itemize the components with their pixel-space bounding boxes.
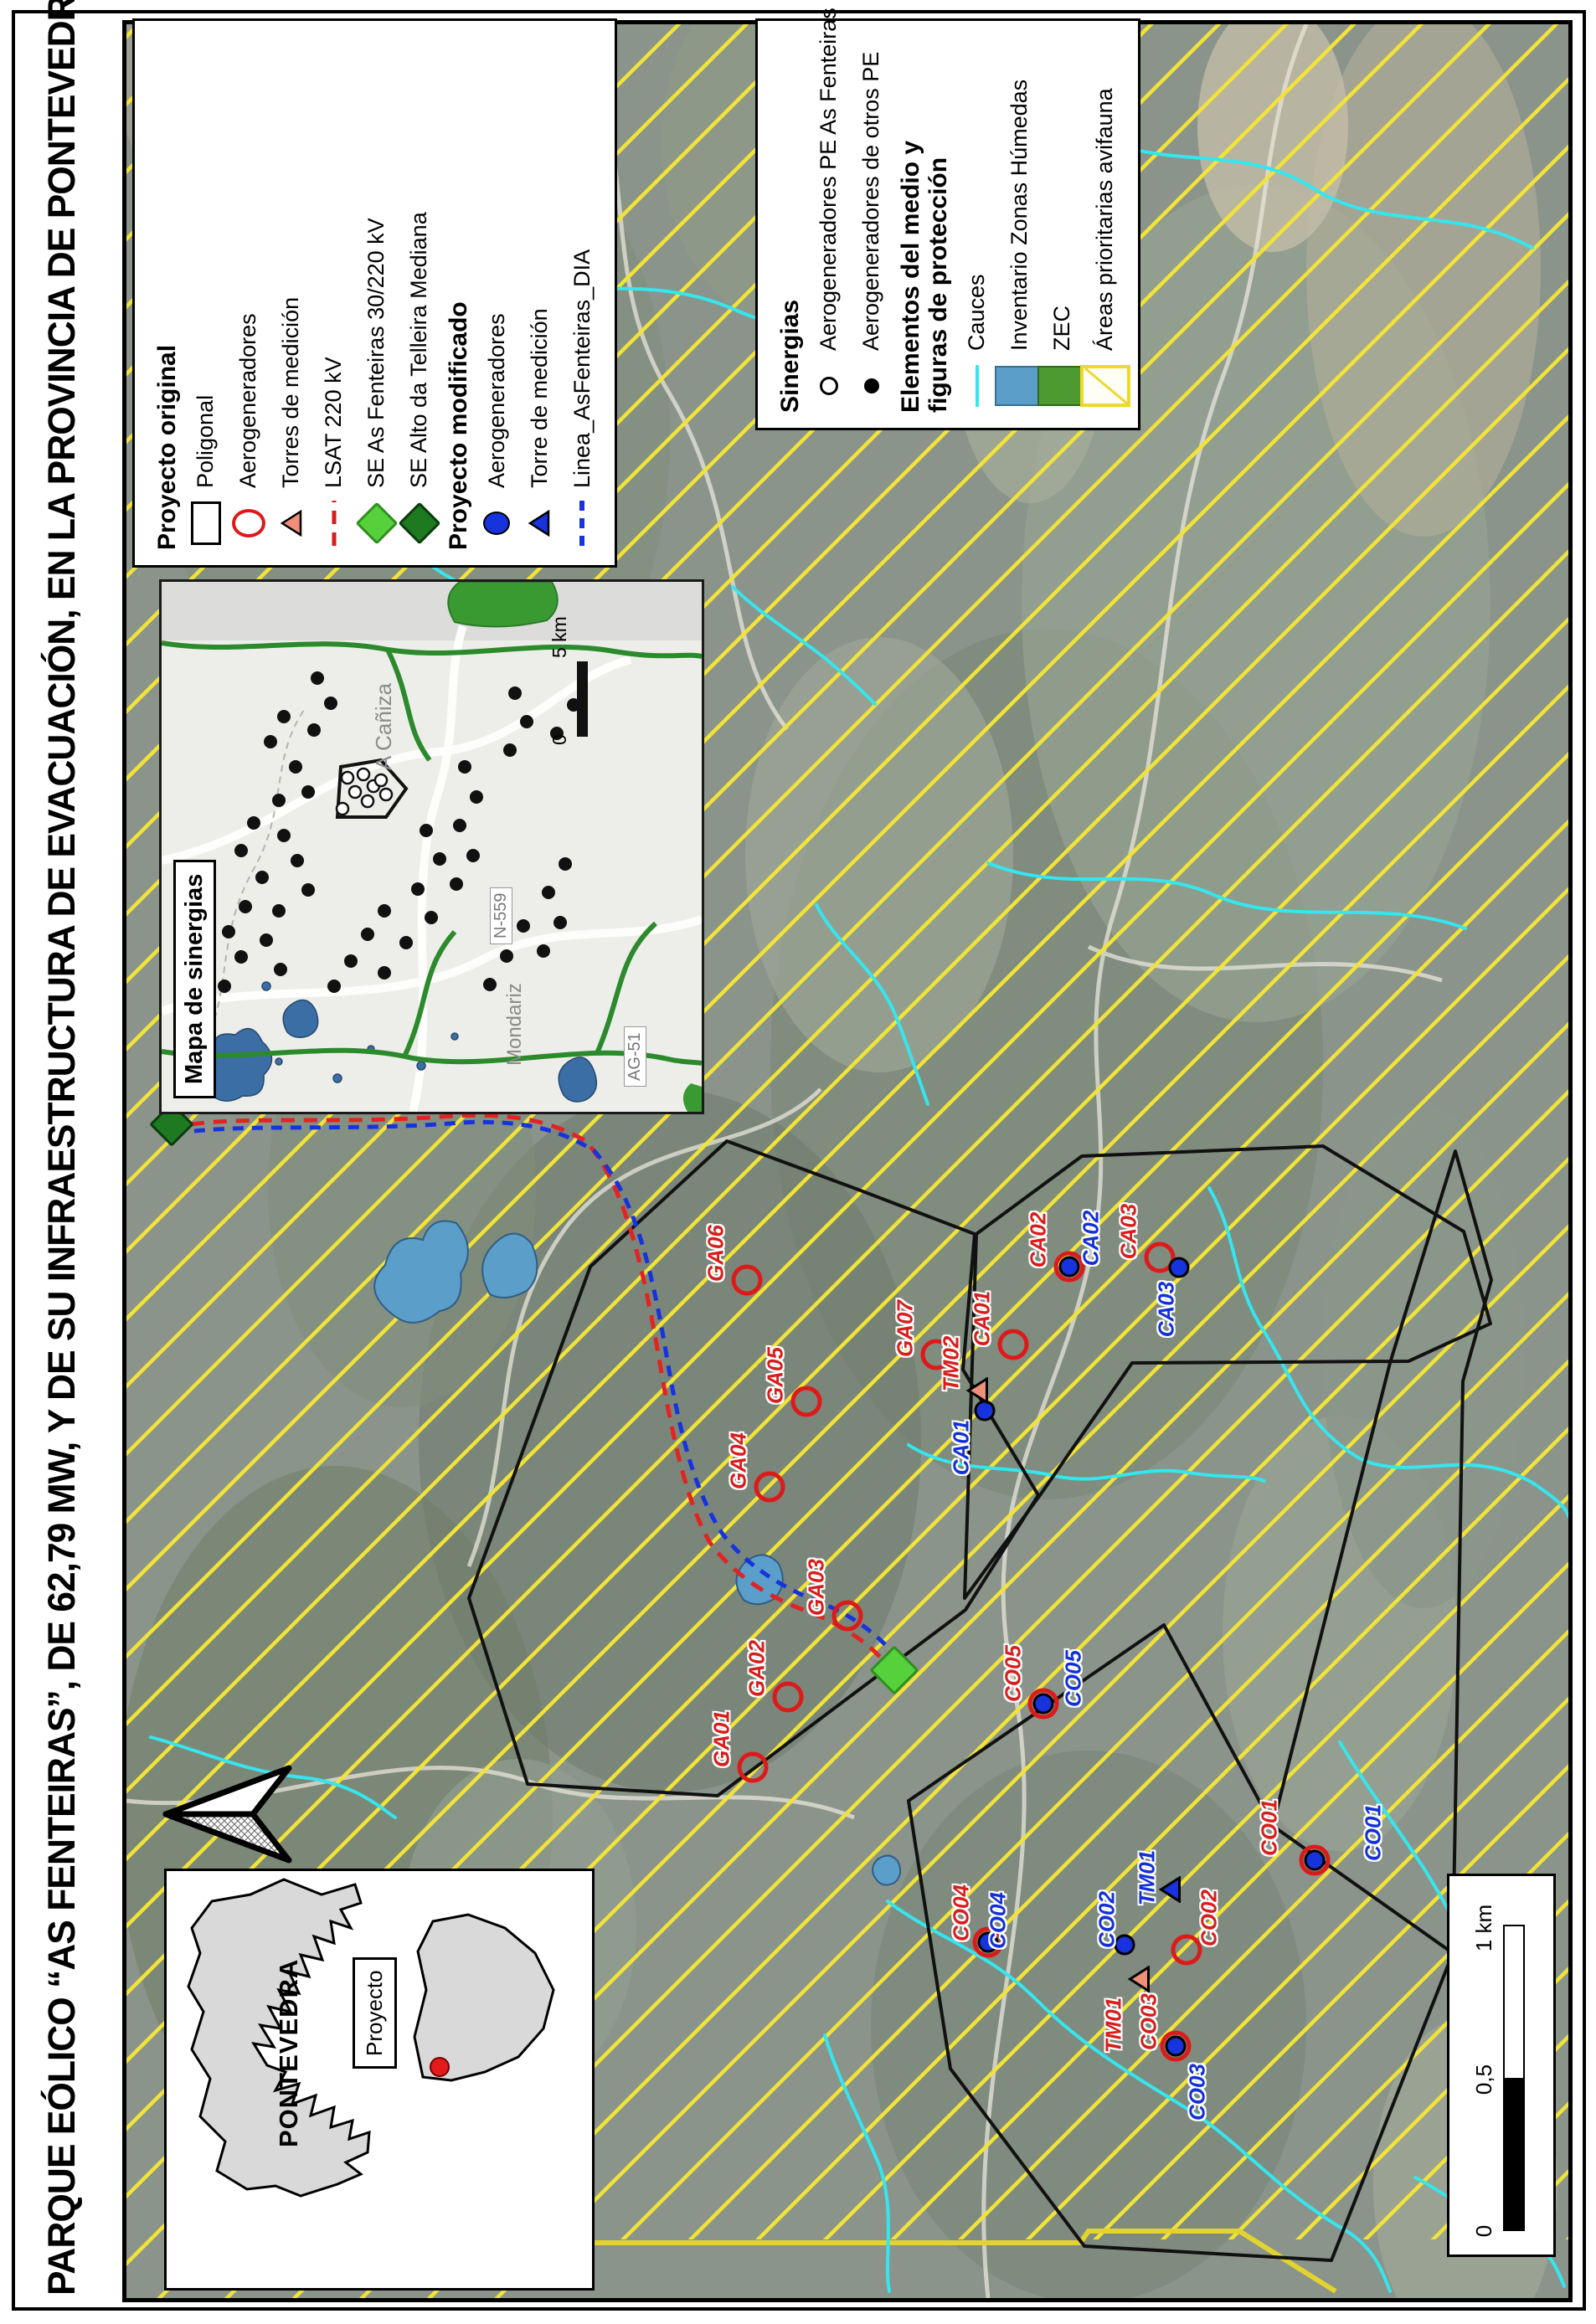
windfarm-dot (466, 849, 480, 862)
feature-label-ca03-red: CA03 (1116, 1204, 1142, 1259)
feature-label-ga02-red: GA02 (744, 1640, 770, 1697)
windfarm-dot (264, 735, 277, 748)
feature-label-ca01-red: CA01 (970, 1291, 996, 1346)
feature-label-co05-blue: CO05 (1061, 1650, 1087, 1707)
windfarm-dot (311, 671, 324, 685)
windfarm-dot (307, 723, 321, 737)
legend-environment: SinergiasAerogeneradores PE As Fenteiras… (755, 18, 1140, 430)
windfarm-dot (420, 824, 433, 837)
rect-hatch-icon (1087, 359, 1124, 413)
legend-section-header: Proyecto modificado (445, 36, 473, 550)
windfarm-dot (411, 882, 425, 896)
turbine-original-and-modified (1300, 1845, 1331, 1876)
legend-item: ZEC (1044, 36, 1081, 413)
scale-one-km: 1 km (1471, 1905, 1497, 1951)
turbine-original-ring (732, 1265, 763, 1296)
legend-item-label: Aerogeneradores (235, 313, 261, 488)
windfarm-dot (255, 871, 269, 884)
windfarm-dot (274, 963, 287, 976)
blue-dot-icon (478, 496, 515, 550)
label-a-caniza: A Cañiza (371, 683, 397, 770)
se-as-fenteiras-diamond (877, 1653, 912, 1688)
windfarm-dot (458, 760, 471, 774)
legend-item: Aerogeneradores (230, 36, 267, 550)
synergies-inset-map: Mapa de sinergias A Cañiza N-559 Mondari… (159, 579, 704, 1114)
legend-item-label: Torres de medición (278, 297, 304, 488)
turbine-original-and-modified (1028, 1689, 1059, 1720)
windfarm-dot (291, 854, 304, 867)
project-label: Proyecto (353, 1957, 397, 2069)
windfarm-dot (559, 857, 572, 871)
feature-label-co02-red: CO02 (1197, 1890, 1223, 1946)
legend-item-label: Aerogeneradores (484, 313, 510, 488)
legend-item: Aerogeneradores (478, 36, 515, 550)
project-turbine-dot (337, 803, 348, 815)
windfarm-dot (260, 933, 273, 947)
windfarm-dot (378, 966, 391, 979)
windfarm-dot (542, 886, 555, 899)
windfarm-dot (553, 916, 567, 929)
windfarm-dot (378, 904, 391, 918)
windfarm-dot (503, 743, 517, 757)
turbine-modified-dot (1169, 1257, 1190, 1278)
feature-label-co03-blue: CO03 (1185, 2064, 1211, 2121)
windfarm-dot (239, 900, 252, 913)
turbine-original-ring (998, 1329, 1029, 1360)
legend-item: SE As Fenteiras 30/220 kV (358, 36, 395, 550)
province-label: PONTEVEDRA (274, 1959, 304, 2147)
windfarm-dot (234, 844, 248, 857)
feature-label-ga07-red: GA07 (893, 1300, 919, 1357)
legend-item: Aerogeneradores de otros PE (853, 36, 890, 413)
small-ring-icon (811, 359, 847, 413)
legend-item: Poligonal (188, 36, 224, 550)
windfarm-dot (289, 760, 302, 774)
feature-label-ga04-red: GA04 (726, 1432, 752, 1489)
feature-label-co01-blue: CO01 (1361, 1804, 1387, 1861)
inset-scale-zero: 0 (548, 734, 571, 745)
diamond-light-icon (358, 496, 395, 550)
feature-label-co01-red: CO01 (1257, 1799, 1283, 1856)
project-turbine-dot (358, 769, 369, 780)
windfarm-dot (301, 883, 315, 897)
feature-label-ca01-blue: CA01 (949, 1420, 975, 1475)
legend-item: Aerogeneradores PE As Fenteiras (811, 36, 847, 413)
project-location-dot (430, 2058, 449, 2076)
province-south-shape (414, 1915, 553, 2080)
inset-scale-five: 5 km (548, 616, 571, 658)
legend-section-header: Sinergias (776, 36, 805, 413)
legend-item-label: Áreas prioritarias avifauna (1092, 88, 1118, 351)
cyan-line-icon (959, 359, 996, 413)
scalebar-bar (1503, 1925, 1525, 2231)
map-title: PARQUE EÓLICO “AS FENTEIRAS”, DE 62,79 M… (40, 69, 84, 2296)
red-triangle-icon (273, 496, 310, 550)
windfarm-dot (222, 925, 235, 938)
feature-label-ga06-red: GA06 (703, 1225, 729, 1282)
windfarm-dot (327, 979, 341, 993)
feature-label-ca03-blue: CA03 (1154, 1282, 1180, 1337)
inset-scalebar (577, 661, 588, 737)
label-ag51: AG-51 (624, 1026, 646, 1087)
windfarm-dot (450, 877, 463, 891)
windfarm-dot (272, 904, 286, 918)
legend-item: LSAT 220 kV (316, 36, 353, 550)
legend-project: Proyecto originalPoligonalAerogeneradore… (132, 18, 617, 568)
label-mondariz: Mondariz (503, 983, 527, 1066)
feature-label-tm01-blue: TM01 (1135, 1850, 1161, 1905)
project-turbine-dot (342, 772, 353, 784)
legend-item-label: Inventario Zonas Húmedas (1007, 80, 1032, 351)
windfarm-dot (500, 949, 513, 963)
pontevedra-inset-map: PONTEVEDRA Proyecto (164, 1869, 595, 2291)
windfarm-dot (272, 794, 286, 807)
turbine-original-ring (773, 1682, 804, 1713)
measure-tower-original (966, 1377, 994, 1404)
windfarm-dot (470, 790, 483, 804)
measure-tower-modified (1159, 1876, 1187, 1903)
windfarm-dot (234, 950, 248, 964)
scalebar: 0 0,5 1 km (1447, 1874, 1556, 2257)
windfarm-dot (301, 785, 315, 799)
legend-item: Linea_AsFenteiras_DIA (564, 36, 600, 550)
synergies-inset-graphics (162, 582, 702, 1112)
measure-tower-original (1128, 1966, 1156, 1992)
windfarm-dot (520, 715, 533, 728)
turbine-original-ring (738, 1752, 769, 1783)
feature-label-co03-red: CO03 (1136, 1993, 1162, 2050)
legend-section-header: Elementos del medio y figuras de protecc… (897, 36, 953, 413)
windfarm-dot (537, 944, 550, 958)
windfarm-dot (453, 819, 466, 832)
turbine-original-and-modified (1161, 2031, 1192, 2062)
legend-item: Inventario Zonas Húmedas (1001, 36, 1038, 413)
feature-label-ca02-blue: CA02 (1079, 1211, 1104, 1266)
small-dot-icon (853, 359, 890, 413)
legend-item-label: Torre de medición (527, 308, 553, 488)
feature-label-co05-red: CO05 (1001, 1645, 1027, 1702)
windfarm-dot (277, 829, 291, 842)
blue-dash-icon (564, 496, 600, 550)
rotated-map-sheet: PARQUE EÓLICO “AS FENTEIRAS”, DE 62,79 M… (0, 0, 1596, 2324)
blue-triangle-icon (521, 496, 558, 550)
scale-zero: 0 (1471, 2225, 1497, 2237)
feature-label-tm02-red: TM02 (939, 1336, 965, 1391)
project-turbine-dot (349, 786, 361, 798)
project-turbine-dot (375, 774, 387, 786)
turbine-original-ring (754, 1472, 785, 1503)
windfarm-dot (247, 816, 260, 830)
label-n559: N-559 (490, 887, 512, 944)
legend-section-header: Proyecto original (153, 36, 182, 550)
diamond-dark-icon (401, 496, 438, 550)
legend-item: SE Alto da Telleira Mediana (401, 36, 438, 550)
windfarm-dot (344, 954, 358, 968)
project-turbine-dot (380, 789, 392, 800)
windfarm-dot (508, 686, 522, 700)
feature-label-ga05-red: GA05 (763, 1347, 789, 1404)
feature-label-ga01-red: GA01 (709, 1710, 735, 1767)
pontevedra-inset-graphics (167, 1871, 592, 2288)
rect-green-icon (1044, 359, 1081, 413)
legend-item: Torre de medición (521, 36, 558, 550)
windfarm-dot (218, 979, 231, 993)
feature-label-co04-red: CO04 (949, 1884, 975, 1941)
legend-item-label: LSAT 220 kV (321, 357, 347, 488)
windfarm-dot (361, 928, 374, 941)
feature-label-ga03-red: GA03 (804, 1559, 830, 1616)
legend-item: Cauces (959, 36, 996, 413)
windfarm-dot (324, 697, 337, 710)
legend-item: Torres de medición (273, 36, 310, 550)
windfarm-dot (399, 936, 413, 949)
legend-item-label: Aerogeneradores de otros PE (858, 52, 884, 351)
windfarm-dot (517, 919, 530, 933)
feature-label-co02-blue: CO02 (1094, 1891, 1120, 1948)
synergies-inset-title: Mapa de sinergias (173, 860, 216, 1098)
windfarm-dot (277, 710, 291, 723)
legend-item-label: ZEC (1049, 306, 1075, 351)
feature-label-ca02-red: CA02 (1026, 1212, 1052, 1267)
red-ring-icon (230, 496, 267, 550)
rect-blue-icon (1001, 359, 1038, 413)
legend-item-label: SE As Fenteiras 30/220 kV (363, 218, 389, 488)
poligonal-icon (188, 496, 224, 550)
windfarm-dot (425, 911, 438, 924)
windfarm-dot (433, 852, 446, 866)
turbine-original-ring (791, 1386, 822, 1417)
scale-half: 0,5 (1471, 2064, 1497, 2095)
legend-item: Áreas prioritarias avifauna (1087, 36, 1124, 413)
feature-label-tm01-red: TM01 (1101, 1998, 1127, 2053)
red-dash-icon (316, 496, 353, 550)
legend-item-label: Cauces (964, 274, 990, 351)
windfarm-dot (483, 978, 497, 991)
legend-item-label: Linea_AsFenteiras_DIA (569, 249, 595, 488)
legend-item-label: Poligonal (193, 395, 219, 488)
project-turbine-dot (362, 795, 373, 807)
legend-item-label: Aerogeneradores PE As Fenteiras (816, 8, 842, 351)
turbine-original-ring (832, 1601, 863, 1632)
legend-item-label: SE Alto da Telleira Mediana (406, 212, 432, 488)
feature-label-co04-blue: CO04 (986, 1892, 1012, 1949)
